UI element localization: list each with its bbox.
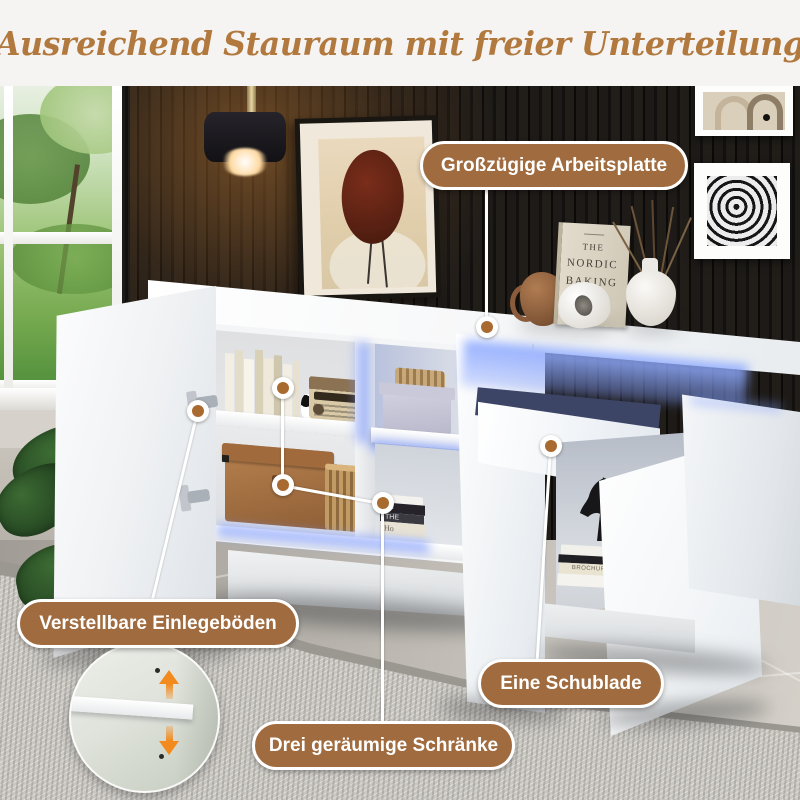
book-row xyxy=(225,353,234,412)
callout-pill-schublade: Eine Schublade xyxy=(478,659,664,708)
right-side-panel xyxy=(682,388,800,606)
callout-label: Verstellbare Einlegeböden xyxy=(39,613,277,635)
art-leaf-shape xyxy=(341,150,404,245)
callout-pill-arbeitsplatte: Großzügige Arbeitsplatte xyxy=(420,141,688,190)
leaf-artwork-frame xyxy=(295,115,442,301)
dried-branches xyxy=(630,200,690,280)
book-spine xyxy=(235,350,243,413)
art-dot xyxy=(763,114,770,121)
callout-label: Großzügige Arbeitsplatte xyxy=(441,155,667,177)
box-corner xyxy=(222,455,229,463)
wall-frame-swirl-art xyxy=(694,163,790,259)
book-spine: Ho xyxy=(379,521,425,538)
radio-knob xyxy=(313,403,324,415)
callout-pill-schraenke: Drei geräumige Schränke xyxy=(252,721,515,770)
wall-frame-arch-art xyxy=(695,84,793,136)
callout-dot xyxy=(187,400,209,422)
callout-label: Eine Schublade xyxy=(500,673,641,695)
book-spine xyxy=(255,350,263,415)
page-title: Ausreichend Stauraum mit freier Untertei… xyxy=(0,24,800,63)
callout-dot xyxy=(540,435,562,457)
radio-dial xyxy=(314,391,356,403)
callout-dot xyxy=(372,492,394,514)
detail-inset xyxy=(69,642,220,793)
cabinet-interior: the THE Ho xyxy=(213,330,463,566)
book-ornament-rule xyxy=(584,234,604,236)
leaf-art-canvas xyxy=(318,137,428,290)
callout-dot xyxy=(272,377,294,399)
book-spine xyxy=(244,359,254,414)
header-band: Ausreichend Stauraum mit freier Untertei… xyxy=(0,0,800,86)
arrow-shaft xyxy=(166,684,173,699)
arrow-up-icon xyxy=(159,670,179,684)
callout-line xyxy=(281,390,284,486)
book-spine xyxy=(293,361,300,418)
callout-line xyxy=(381,504,384,722)
product-photo: the THE Ho BROCHURE xyxy=(0,0,800,800)
book-title-line: THE xyxy=(561,240,625,253)
callout-dot xyxy=(272,474,294,496)
art-mat xyxy=(300,120,436,295)
arrow-down-icon xyxy=(159,741,179,755)
lamp-bulb-glow xyxy=(221,148,269,176)
arch-shape xyxy=(747,94,783,130)
callout-pill-einlegeboeden: Verstellbare Einlegeböden xyxy=(17,599,299,648)
lavender-box xyxy=(383,386,451,434)
book-title-line: NORDIC xyxy=(560,256,625,271)
window-mullion xyxy=(0,232,122,244)
callout-line xyxy=(485,184,488,320)
callout-label: Drei geräumige Schränke xyxy=(269,735,498,757)
arch-art xyxy=(703,92,785,130)
led-strip-glow xyxy=(352,342,369,443)
callout-dot xyxy=(476,316,498,338)
swirl-art xyxy=(707,176,777,246)
arrow-shaft xyxy=(166,726,173,741)
sculpture-hole xyxy=(572,293,595,319)
